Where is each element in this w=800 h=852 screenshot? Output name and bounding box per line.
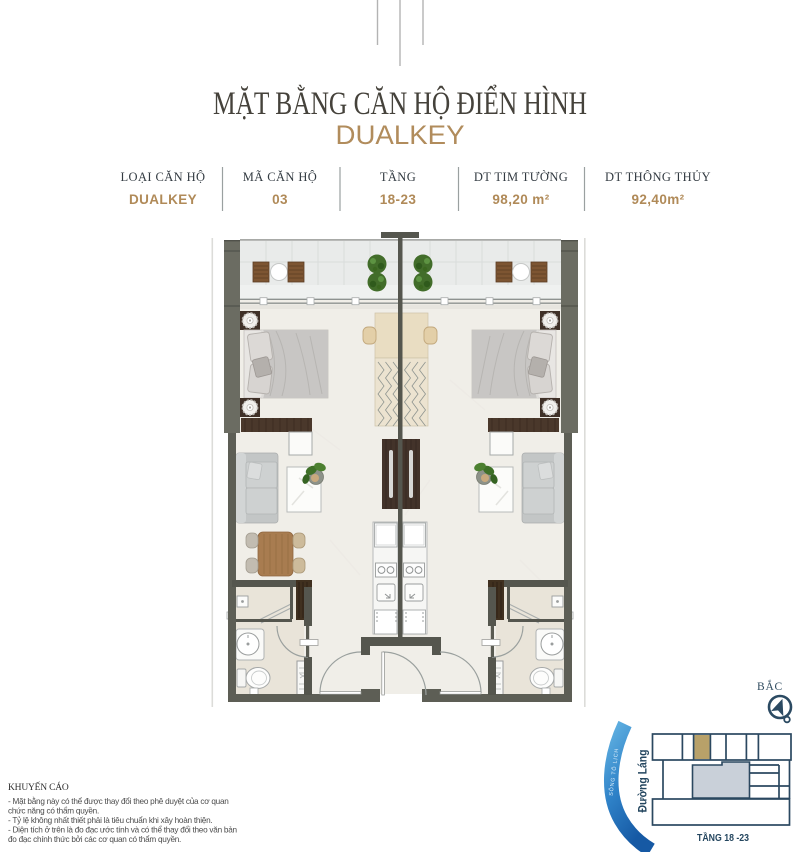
svg-text:92,40m²: 92,40m² [631,192,684,207]
svg-text:MÃ CĂN HỘ: MÃ CĂN HỘ [243,170,317,184]
svg-text:MẶT BẰNG CĂN HỘ ĐIỂN HÌNH: MẶT BẰNG CĂN HỘ ĐIỂN HÌNH [213,84,587,122]
svg-text:DT THÔNG THỦY: DT THÔNG THỦY [605,170,711,184]
svg-text:TẦNG 18 -23: TẦNG 18 -23 [697,831,749,844]
svg-text:- Diện tích ở trên là đo đạc ư: - Diện tích ở trên là đo đạc ước tính và… [8,825,238,835]
svg-text:- Tỷ lệ không nhất thiết phải: - Tỷ lệ không nhất thiết phải là tiêu ch… [8,815,212,825]
svg-text:đo đạc chính thức bởi các cơ q: đo đạc chính thức bởi các cơ quan có thẩ… [8,834,181,844]
svg-text:DUALKEY: DUALKEY [336,120,465,150]
svg-text:BẮC: BẮC [757,678,783,693]
svg-text:TẦNG: TẦNG [380,169,416,184]
svg-text:Đường Láng: Đường Láng [638,750,650,813]
svg-text:03: 03 [272,192,288,207]
svg-text:chức năng có thẩm quyền.: chức năng có thẩm quyền. [8,806,99,816]
svg-text:DT TIM TƯỜNG: DT TIM TƯỜNG [474,170,568,184]
svg-text:- Mặt bằng này có thể được tha: - Mặt bằng này có thể được thay đổi theo… [8,796,229,806]
svg-text:98,20 m²: 98,20 m² [492,192,549,207]
svg-text:18-23: 18-23 [380,192,417,207]
svg-text:KHUYẾN CÁO: KHUYẾN CÁO [8,780,69,793]
svg-text:LOẠI CĂN HỘ: LOẠI CĂN HỘ [121,170,206,184]
svg-text:DUALKEY: DUALKEY [129,192,197,207]
